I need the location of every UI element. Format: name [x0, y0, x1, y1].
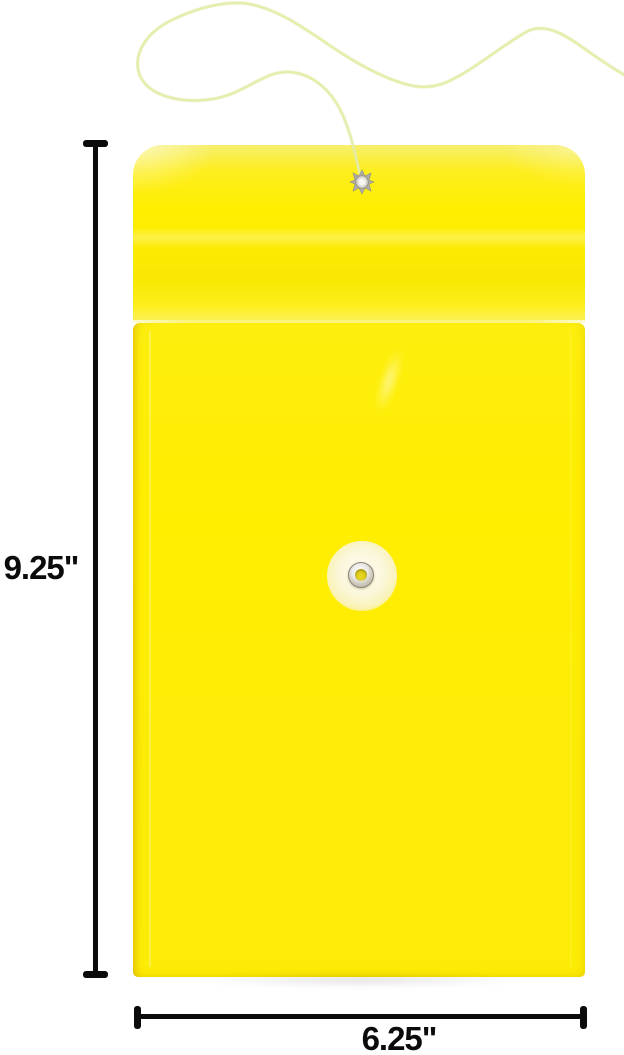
width-dimension-cap-left: [134, 1006, 141, 1029]
height-dimension-cap-bottom: [83, 971, 108, 978]
drop-shadow: [140, 971, 578, 989]
flap-grommet: [349, 169, 375, 195]
button-eyelet-hole: [355, 569, 367, 581]
width-dimension-cap-right: [580, 1006, 587, 1029]
width-dimension-line: [137, 1014, 584, 1019]
envelope-body: [133, 323, 585, 977]
height-dimension-cap-top: [83, 140, 108, 147]
height-dimension-label: 9.25": [0, 551, 84, 584]
product-photo: 9.25" 6.25": [0, 0, 624, 1055]
width-dimension-label: 6.25": [336, 1022, 462, 1055]
height-dimension-line: [93, 142, 98, 978]
button-eyelet: [348, 562, 374, 588]
string-tie-button: [327, 541, 397, 611]
